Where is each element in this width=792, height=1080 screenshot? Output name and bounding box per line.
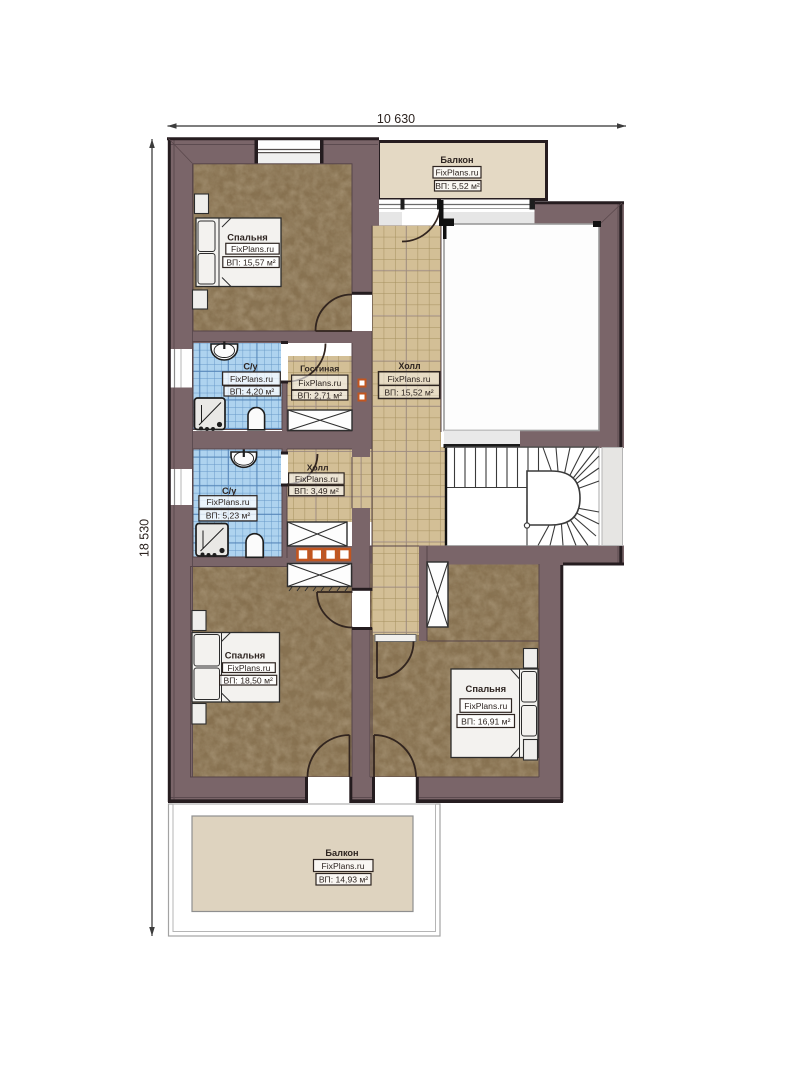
svg-text:FixPlans.ru: FixPlans.ru [227, 663, 270, 673]
svg-text:ВП: 3,49 м²: ВП: 3,49 м² [294, 486, 339, 496]
svg-text:Спальня: Спальня [227, 232, 268, 243]
svg-text:Спальня: Спальня [225, 650, 266, 661]
svg-text:Холл: Холл [398, 361, 420, 371]
svg-text:ВП: 18,50 м²: ВП: 18,50 м² [224, 675, 273, 685]
svg-text:FixPlans.ru: FixPlans.ru [436, 168, 479, 178]
svg-text:ВП: 15,57 м²: ВП: 15,57 м² [226, 257, 275, 267]
svg-text:18 530: 18 530 [138, 519, 152, 557]
svg-text:10 630: 10 630 [377, 112, 415, 126]
svg-text:ВП: 2,71 м²: ВП: 2,71 м² [298, 391, 343, 401]
svg-text:С/у: С/у [243, 362, 258, 372]
svg-text:ВП: 4,20 м²: ВП: 4,20 м² [230, 387, 275, 397]
svg-text:ВП: 14,93 м²: ВП: 14,93 м² [319, 875, 368, 885]
svg-text:FixPlans.ru: FixPlans.ru [322, 861, 365, 871]
svg-text:Балкон: Балкон [325, 848, 358, 858]
svg-text:ВП: 16,91 м²: ВП: 16,91 м² [461, 717, 510, 727]
svg-text:Гостиная: Гостиная [300, 364, 339, 374]
svg-text:FixPlans.ru: FixPlans.ru [207, 497, 250, 507]
svg-text:FixPlans.ru: FixPlans.ru [231, 244, 274, 254]
svg-text:ВП: 5,23 м²: ВП: 5,23 м² [206, 511, 251, 521]
svg-text:С/у: С/у [222, 486, 237, 496]
svg-text:FixPlans.ru: FixPlans.ru [464, 701, 507, 711]
svg-text:ВП: 15,52 м²: ВП: 15,52 м² [384, 388, 433, 398]
svg-text:Спальня: Спальня [466, 683, 507, 694]
svg-text:Балкон: Балкон [440, 155, 473, 165]
svg-text:FixPlans.ru: FixPlans.ru [388, 374, 431, 384]
svg-text:Холл: Холл [307, 463, 329, 473]
svg-text:FixPlans.ru: FixPlans.ru [230, 374, 273, 384]
svg-text:FixPlans.ru: FixPlans.ru [298, 378, 341, 388]
svg-text:ВП: 5,52 м²: ВП: 5,52 м² [435, 181, 480, 191]
svg-text:FixPlans.ru: FixPlans.ru [295, 474, 338, 484]
